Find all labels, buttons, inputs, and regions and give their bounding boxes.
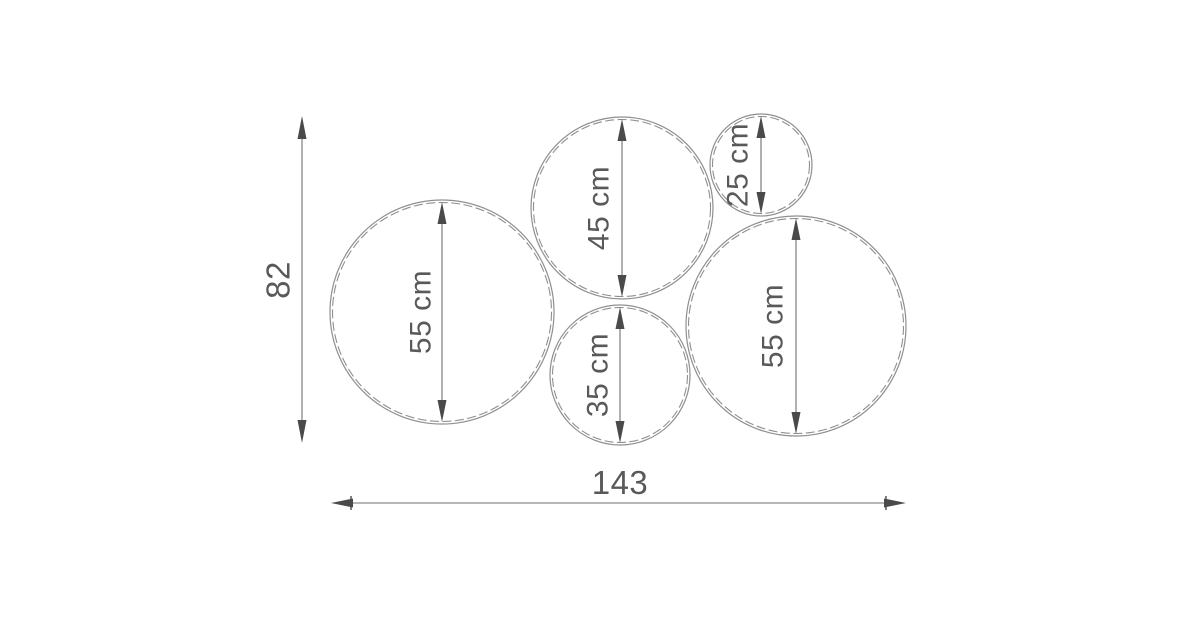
overall-height-dimension: 82 [260,116,307,443]
dimension-drawing: 55 cm 45 cm 25 cm 35 cm 55 cm [0,0,1200,630]
diameter-label: 55 cm [405,270,438,354]
arrowhead-down-icon [438,400,447,422]
overall-width-dimension: 143 [331,464,906,510]
diameter-label: 45 cm [583,166,616,250]
arrowhead-down-icon [618,275,627,297]
arrowhead-up-icon [616,307,625,329]
top-middle-circle: 45 cm [531,117,713,299]
bottom-middle-circle: 35 cm [550,305,690,445]
arrowhead-up-icon [298,116,307,139]
diagram-canvas: 55 cm 45 cm 25 cm 35 cm 55 cm [0,0,1200,630]
arrowhead-up-icon [618,119,627,141]
diameter-label: 55 cm [757,284,790,368]
overall-height-label: 82 [260,261,297,299]
arrowhead-up-icon [792,218,801,240]
arrowhead-left-icon [331,499,353,508]
arrowhead-up-icon [757,116,766,138]
right-large-circle: 55 cm [686,216,906,436]
diameter-label: 35 cm [582,333,615,417]
arrowhead-down-icon [792,412,801,434]
arrowhead-down-icon [298,420,307,443]
top-right-small-circle: 25 cm [710,114,812,216]
arrowhead-down-icon [757,192,766,214]
arrowhead-right-icon [884,499,906,508]
diameter-label: 25 cm [722,123,755,207]
arrowhead-down-icon [616,421,625,443]
arrowhead-up-icon [438,202,447,224]
overall-width-label: 143 [592,464,649,501]
left-large-circle: 55 cm [330,200,554,424]
